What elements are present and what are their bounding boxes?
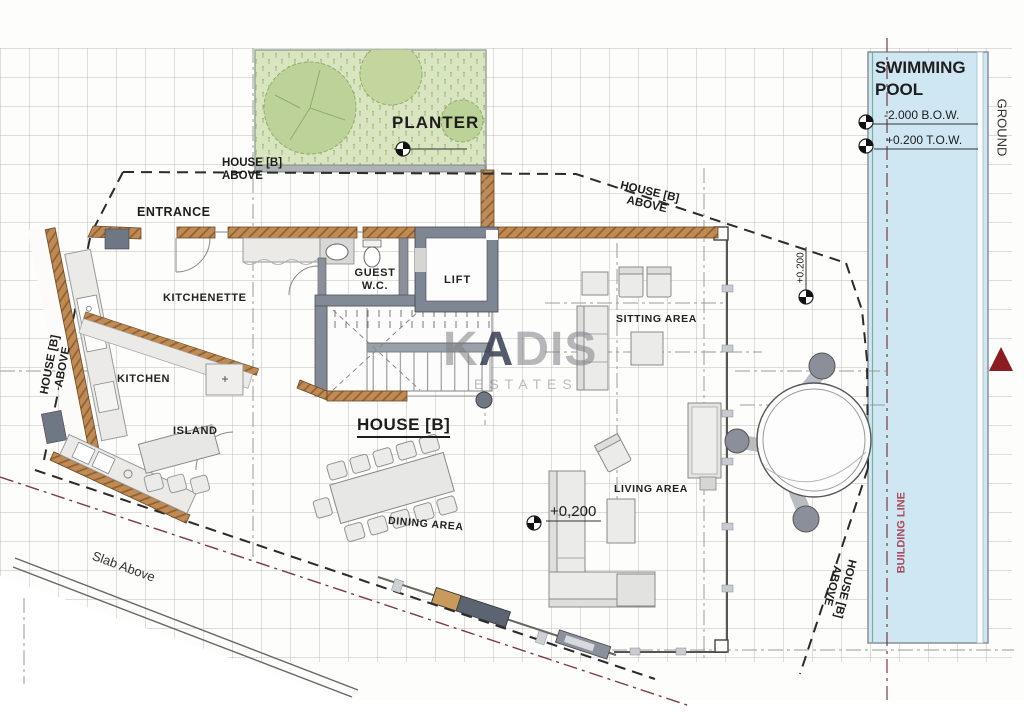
watermark-dis: DIS (514, 323, 597, 376)
kitchenette-label: KITCHENETTE (163, 292, 247, 305)
floor-plan-canvas: SWIMMING POOL -2.000 B.O.W. +0.200 T.O.W… (0, 0, 1024, 724)
guest-wc-label: GUEST W.C. (352, 267, 398, 292)
console-unit (688, 403, 721, 490)
house-above-label-top-left: HOUSE [B] ABOVE (222, 157, 282, 183)
entrance-door-swing (176, 238, 210, 272)
kitchen-label: KITCHEN (117, 373, 170, 386)
entrance-label: ENTRANCE (137, 205, 210, 219)
watermark-k: K (443, 323, 479, 376)
living-level-text: +0,200 (550, 503, 596, 520)
armchair (619, 267, 643, 297)
house-above-line2: ABOVE (222, 170, 282, 183)
pool-tow-level: +0.200 T.O.W. (886, 134, 962, 148)
terrace-level-text: +0.200 (795, 246, 807, 290)
watermark-subtitle: ESTATES (474, 376, 578, 392)
living-area-label: LIVING AREA (614, 483, 688, 495)
dining-set (304, 433, 460, 548)
wall-segment (481, 170, 494, 228)
toilet (364, 247, 380, 267)
armchair (594, 434, 631, 473)
pool-label-line1: SWIMMING (875, 57, 966, 79)
ground-label: GROUND (993, 99, 1008, 157)
watermark-brand: KADIS (443, 322, 597, 377)
lift-label: LIFT (444, 274, 471, 287)
pool-bow-level: -2.000 B.O.W. (884, 109, 959, 123)
living-area-furniture (549, 434, 655, 607)
toilet-cistern (363, 240, 381, 247)
mask-lower-left (0, 576, 352, 702)
column (105, 229, 129, 249)
coffee-table (607, 499, 635, 543)
sitting-area-label: SITTING AREA (616, 313, 697, 325)
house-above-line1: HOUSE [B] (222, 157, 282, 170)
pool-label-line2: POOL (875, 79, 966, 101)
door-swing (289, 266, 318, 295)
guest-wc-line2: W.C. (352, 280, 398, 293)
lift-shaft (415, 227, 498, 312)
pool-label: SWIMMING POOL (875, 57, 966, 101)
guest-wc-line1: GUEST (352, 267, 398, 280)
planter-bed (255, 43, 494, 228)
watermark-a: A (479, 323, 515, 376)
round-terrace (725, 353, 871, 532)
mask-bottom (0, 700, 1024, 724)
column (809, 353, 835, 379)
tree-symbol (360, 43, 422, 105)
wash-basin (326, 244, 348, 260)
side-table (582, 272, 608, 295)
column (793, 506, 819, 532)
north-marker (989, 347, 1013, 371)
column (725, 429, 749, 453)
house-b-title: HOUSE [B] (357, 415, 450, 438)
column (476, 392, 492, 408)
island-label: ISLAND (173, 425, 218, 438)
building-line-label: BUILDING LINE (896, 493, 909, 573)
coffee-table (631, 332, 663, 365)
planter-label: PLANTER (392, 113, 479, 133)
armchair (647, 267, 671, 297)
